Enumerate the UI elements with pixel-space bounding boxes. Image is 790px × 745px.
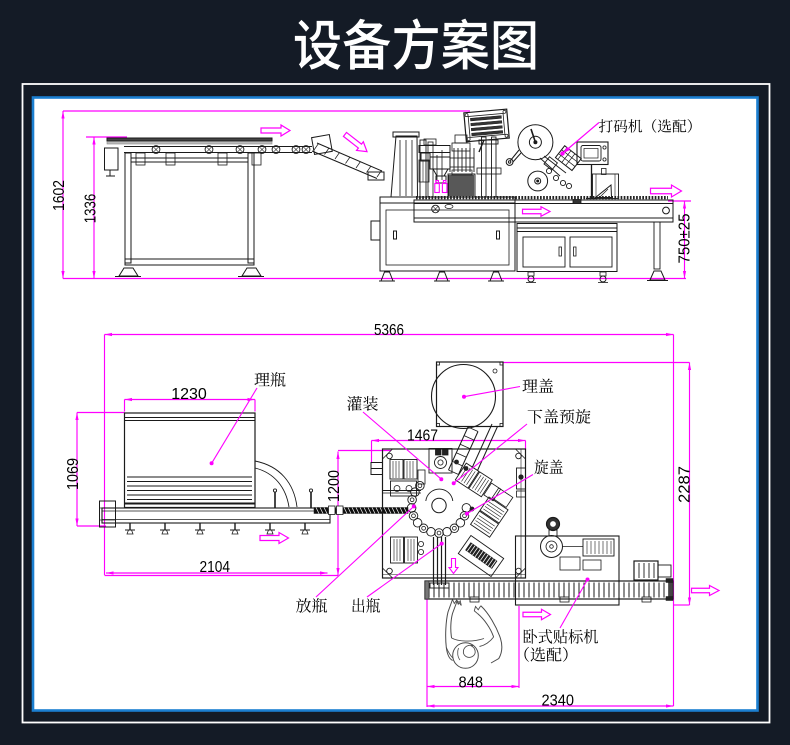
svg-text:2340: 2340	[542, 692, 575, 709]
svg-text:1069: 1069	[65, 458, 82, 490]
svg-text:1602: 1602	[51, 180, 68, 211]
svg-text:1467: 1467	[407, 427, 438, 444]
svg-text:5366: 5366	[374, 322, 404, 339]
svg-text:1336: 1336	[83, 194, 100, 224]
svg-text:848: 848	[459, 674, 484, 691]
svg-text:1200: 1200	[326, 470, 343, 502]
svg-text:1230: 1230	[171, 386, 207, 403]
svg-text:750±25: 750±25	[677, 213, 694, 263]
svg-text:2287: 2287	[676, 466, 693, 503]
svg-text:2104: 2104	[200, 559, 231, 576]
